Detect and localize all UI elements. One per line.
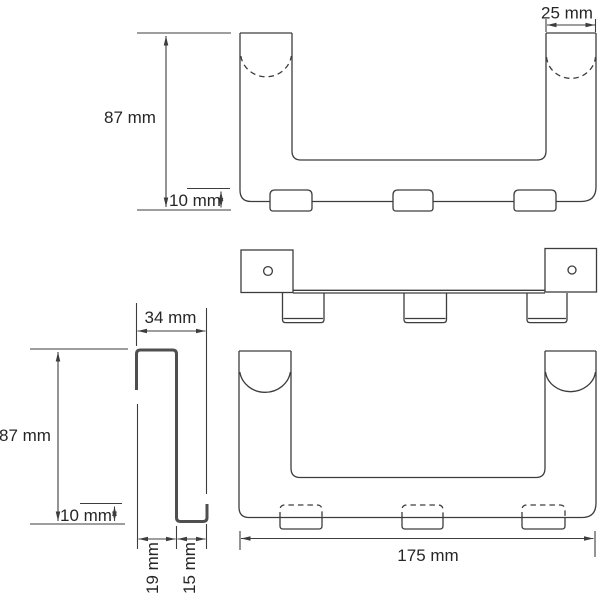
plan-right-plate [545, 249, 597, 293]
front-bottom-tab-2-hidden [402, 505, 443, 518]
front-top-left-bend-arc [241, 56, 292, 77]
front-top-inner-outline [292, 33, 546, 160]
dim-strip-width: 25 mm [541, 4, 595, 33]
dim-front-tab-label: 10 mm [169, 191, 221, 210]
dim-side-gap: 19 mm [138, 404, 177, 594]
plan-left-screw-hole [264, 267, 273, 276]
dim-overall-width: 175 mm [240, 531, 595, 565]
front-bottom-tab-2 [402, 518, 443, 530]
front-bottom-right-bend-arc [546, 372, 596, 392]
dim-side-gap-label: 19 mm [143, 542, 162, 594]
front-bottom-tab-3 [522, 518, 565, 530]
front-bottom-outer-outline [239, 351, 596, 518]
front-bottom-left-bend-arc [240, 372, 291, 392]
dim-front-tab: 10 mm [169, 189, 230, 211]
dim-side-depth: 34 mm [137, 303, 207, 549]
dim-side-lip: 10 mm [60, 504, 122, 526]
plan-view [241, 249, 597, 323]
front-top-right-bend-arc [547, 57, 596, 78]
dim-front-height-label: 87 mm [104, 108, 156, 127]
hook-rack-drawing: 87 mm 10 mm 25 mm 34 mm [0, 0, 600, 600]
plan-left-plate [241, 250, 293, 293]
front-top-tab-3 [514, 190, 556, 211]
dim-side-hook-label: 15 mm [180, 542, 199, 594]
front-view-top [240, 33, 596, 211]
front-bottom-tab-1-hidden [280, 505, 322, 518]
front-view-bottom [239, 351, 596, 529]
dim-front-height: 87 mm [104, 33, 231, 210]
dim-side-lip-label: 10 mm [60, 506, 112, 525]
plan-right-screw-hole [568, 266, 576, 274]
dim-side-depth-label: 34 mm [145, 308, 197, 327]
front-bottom-inner-outline [291, 351, 545, 478]
front-top-outer-outline [240, 33, 596, 202]
front-top-tab-1 [270, 190, 312, 211]
dim-overall-width-label: 175 mm [397, 546, 458, 565]
side-view [137, 350, 208, 522]
dim-side-height-label: 87 mm [0, 426, 51, 445]
dim-side-height: 87 mm [0, 349, 128, 524]
technical-drawing-canvas: 87 mm 10 mm 25 mm 34 mm [0, 0, 600, 600]
front-top-tab-2 [393, 190, 433, 211]
dim-strip-width-label: 25 mm [541, 4, 593, 23]
dim-side-hook: 15 mm [178, 539, 206, 594]
front-bottom-tab-3-hidden [522, 505, 565, 518]
side-profile [137, 350, 208, 522]
front-bottom-tab-1 [280, 518, 322, 530]
